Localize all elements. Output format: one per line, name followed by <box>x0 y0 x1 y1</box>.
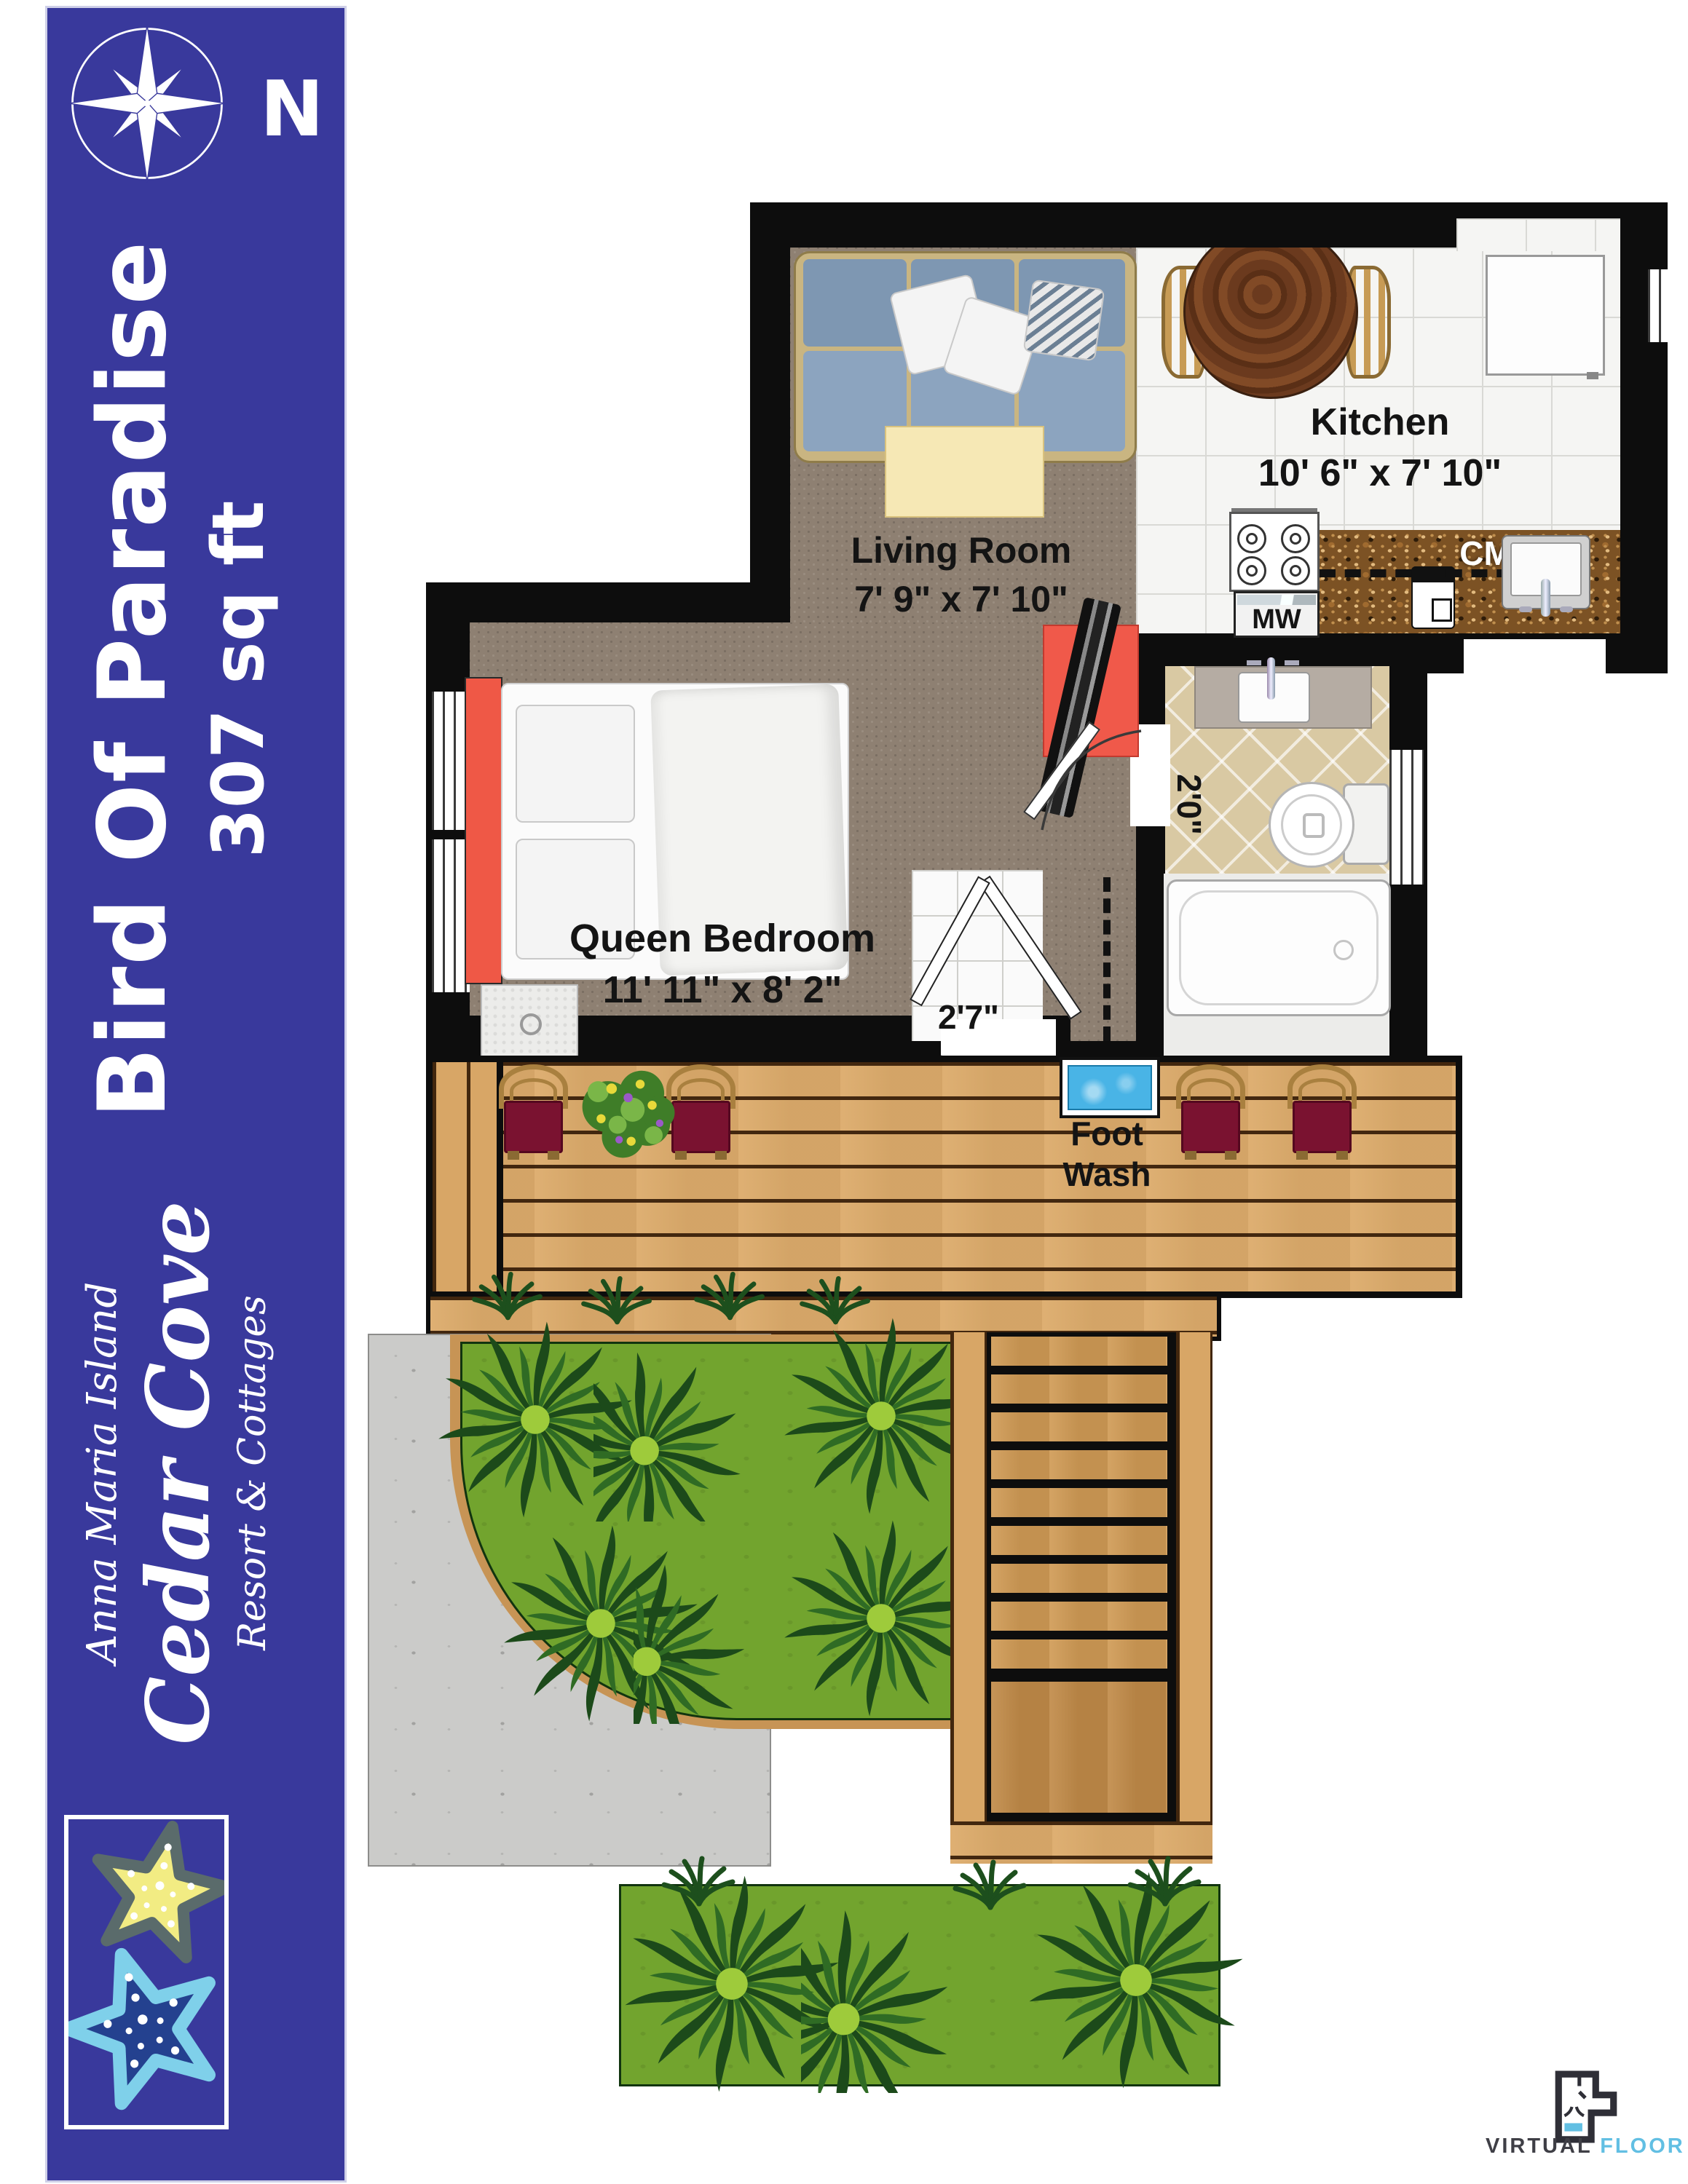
stove <box>1229 512 1320 592</box>
bed-headboard <box>465 677 502 984</box>
kitchen-window <box>1648 269 1668 342</box>
foot-wash-label-2: Wash <box>1034 1155 1180 1194</box>
bathroom-window <box>1389 750 1424 885</box>
foot-wash-basin <box>1060 1057 1160 1118</box>
living-room-dims: 7' 9" x 7' 10" <box>816 578 1107 620</box>
closet-fold-line <box>1103 877 1111 1041</box>
deck-chair <box>1287 1064 1357 1160</box>
vfp-logo-text: VIRTUAL FLOOR PLANS <box>1486 2134 1688 2159</box>
fridge-niche <box>1456 218 1620 251</box>
sidebar: N Bird Of Paradise 307 sq ft Anna Maria … <box>45 6 347 2183</box>
resort-location: Anna Maria Island <box>76 1282 130 1663</box>
refrigerator <box>1486 255 1605 376</box>
bathroom-door-arc-icon <box>1038 728 1143 834</box>
starfish-logo <box>64 1815 229 2129</box>
foot-wash-label-1: Foot <box>1034 1114 1180 1153</box>
unit-title-block: Bird Of Paradise 307 sq ft <box>60 206 301 1152</box>
compass-rose-icon <box>60 17 234 190</box>
dining-table <box>1183 248 1358 399</box>
vfp-word-virtual: VIRTUAL <box>1486 2134 1592 2158</box>
flower-planter-icon <box>567 1054 687 1174</box>
resort-tagline: Resort & Cottages <box>227 1295 278 1650</box>
grass-tuft-icon <box>947 1856 1034 1915</box>
bedroom-dims: 11' 11" x 8' 2" <box>562 968 883 1012</box>
deck-chair <box>499 1064 568 1160</box>
vfp-logo-icon <box>1551 2070 1621 2144</box>
microwave: MW <box>1234 591 1320 638</box>
stair-landing <box>991 1682 1167 1813</box>
bedroom-label: Queen Bedroom <box>562 916 883 961</box>
bathroom-width-label: 2'0" <box>1170 753 1209 855</box>
kitchen-dims: 10' 6" x 7' 10" <box>1234 451 1526 495</box>
page: MW CM <box>0 0 1688 2184</box>
grass-tuft-icon <box>655 1853 743 1911</box>
deck-chair <box>1176 1064 1245 1160</box>
entry-width-label: 2'7" <box>896 997 1041 1037</box>
sofa-pillow-striped <box>1023 280 1105 362</box>
unit-area: 307 sq ft <box>192 501 286 858</box>
bathtub <box>1167 879 1391 1016</box>
starfish-blue-icon <box>64 1934 229 2124</box>
grass-tuft-icon <box>1121 1853 1209 1911</box>
kitchen-back-opening <box>1464 639 1606 673</box>
toilet <box>1269 779 1389 866</box>
kitchen-label: Kitchen <box>1249 400 1511 444</box>
unit-title: Bird Of Paradise <box>75 240 192 1119</box>
north-label: N <box>260 65 324 154</box>
kitchen-sink <box>1502 535 1590 609</box>
resort-brand-block: Anna Maria Island Cedar Cove Resort & Co… <box>50 1152 304 1793</box>
vfp-word-floor: FLOOR <box>1600 2134 1685 2158</box>
microwave-label: MW <box>1236 604 1317 636</box>
stairs <box>950 1332 1212 1864</box>
coffee-table <box>885 426 1044 518</box>
living-room-label: Living Room <box>816 529 1107 571</box>
resort-name: Cedar Cove <box>130 1200 227 1744</box>
palm-plant-icon <box>593 1310 805 1522</box>
bathroom-vanity <box>1194 666 1372 729</box>
